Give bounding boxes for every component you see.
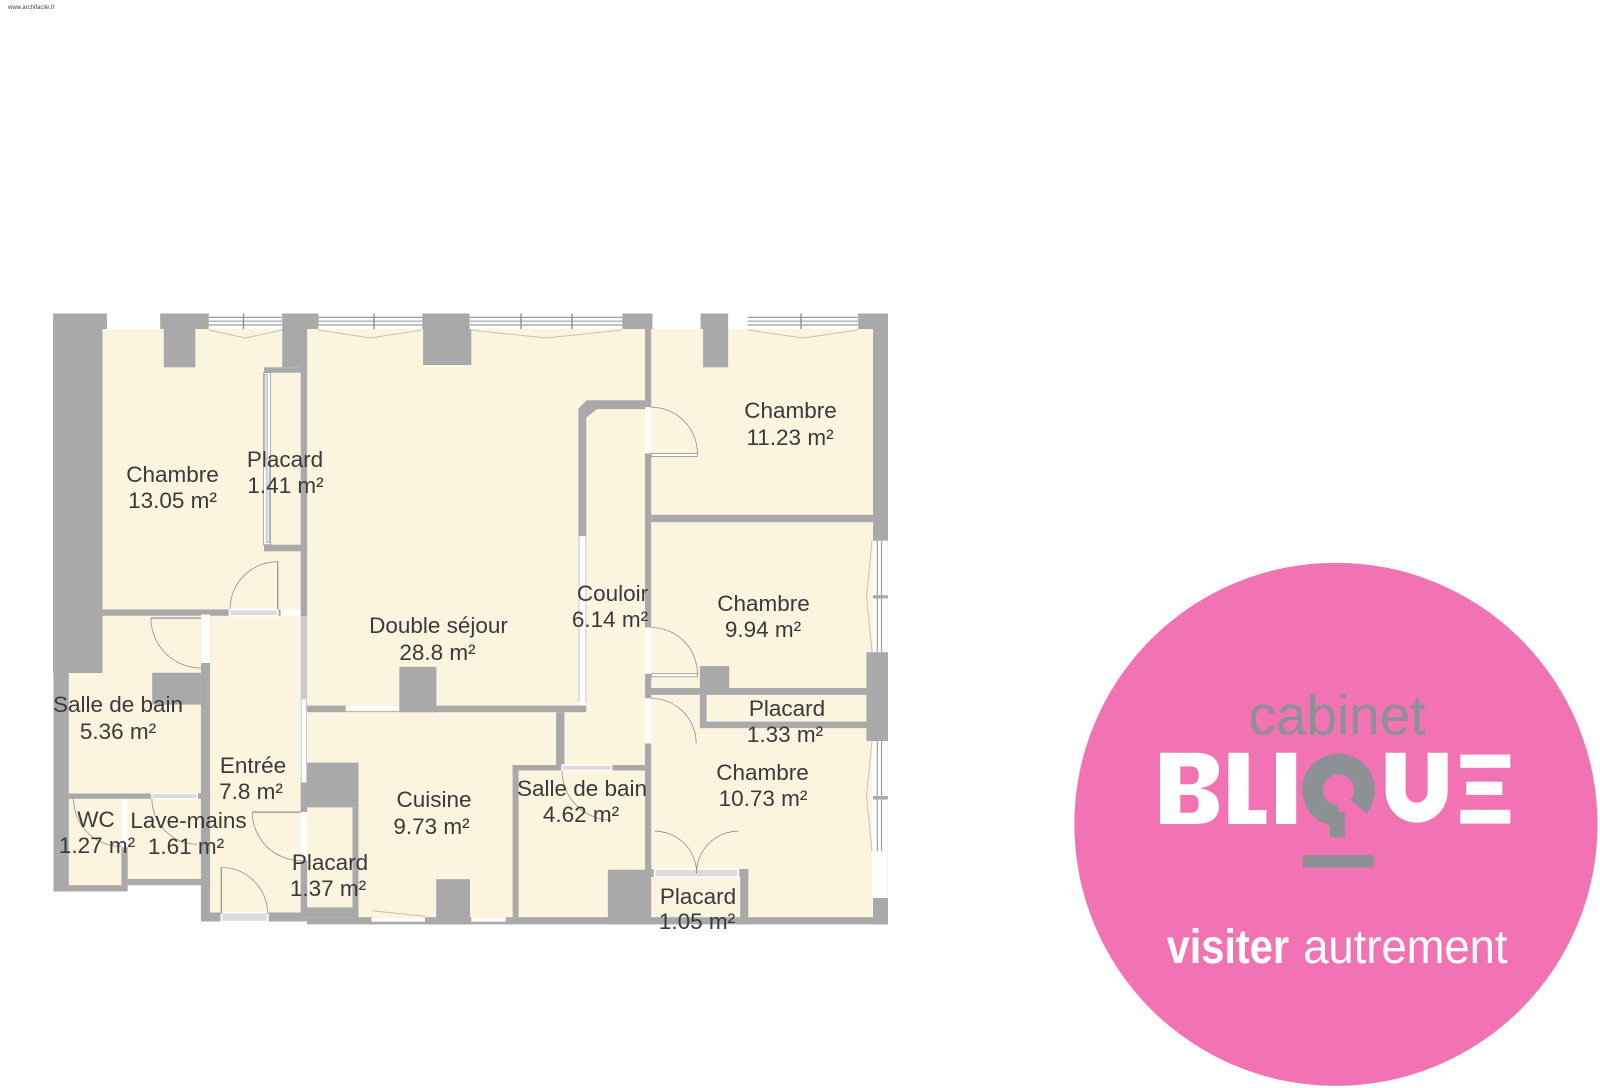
svg-text:9.94 m²: 9.94 m² xyxy=(725,617,802,642)
svg-text:Chambre: Chambre xyxy=(716,760,809,785)
svg-text:Salle de bain: Salle de bain xyxy=(517,776,647,801)
svg-text:1.41 m²: 1.41 m² xyxy=(247,473,324,498)
svg-text:Placard: Placard xyxy=(660,884,736,909)
svg-text:autrement: autrement xyxy=(1303,921,1507,974)
svg-text:9.73 m²: 9.73 m² xyxy=(393,814,470,839)
svg-text:Chambre: Chambre xyxy=(126,462,219,487)
svg-text:www.archifacile.fr: www.archifacile.fr xyxy=(7,5,55,11)
svg-text:Chambre: Chambre xyxy=(744,398,837,423)
svg-text:Double séjour: Double séjour xyxy=(369,613,508,638)
svg-text:Cuisine: Cuisine xyxy=(396,787,471,812)
svg-text:Chambre: Chambre xyxy=(717,591,810,616)
svg-text:7.8 m²: 7.8 m² xyxy=(219,779,283,804)
svg-text:Placard: Placard xyxy=(749,696,825,721)
svg-text:Placard: Placard xyxy=(292,850,368,875)
svg-text:4.62 m²: 4.62 m² xyxy=(543,802,620,827)
svg-text:1.05 m²: 1.05 m² xyxy=(659,909,736,934)
svg-text:10.73 m²: 10.73 m² xyxy=(719,786,808,811)
svg-text:cabinet: cabinet xyxy=(1249,684,1426,747)
svg-text:visiter: visiter xyxy=(1167,921,1289,974)
svg-text:Couloir: Couloir xyxy=(577,581,649,606)
svg-text:Salle de bain: Salle de bain xyxy=(53,692,183,717)
svg-text:Lave-mains: Lave-mains xyxy=(130,808,246,833)
svg-text:28.8 m²: 28.8 m² xyxy=(399,640,476,665)
svg-text:5.36 m²: 5.36 m² xyxy=(80,719,157,744)
svg-text:Entrée: Entrée xyxy=(220,753,286,778)
svg-text:1.61 m²: 1.61 m² xyxy=(148,834,225,859)
svg-text:1.33 m²: 1.33 m² xyxy=(747,722,824,747)
svg-text:11.23 m²: 11.23 m² xyxy=(746,425,834,450)
svg-text:1.27 m²: 1.27 m² xyxy=(59,833,136,858)
svg-text:13.05 m²: 13.05 m² xyxy=(128,488,217,513)
svg-text:6.14 m²: 6.14 m² xyxy=(572,607,649,632)
svg-text:Placard: Placard xyxy=(247,447,323,472)
svg-text:WC: WC xyxy=(77,807,115,832)
svg-text:1.37 m²: 1.37 m² xyxy=(290,876,367,901)
